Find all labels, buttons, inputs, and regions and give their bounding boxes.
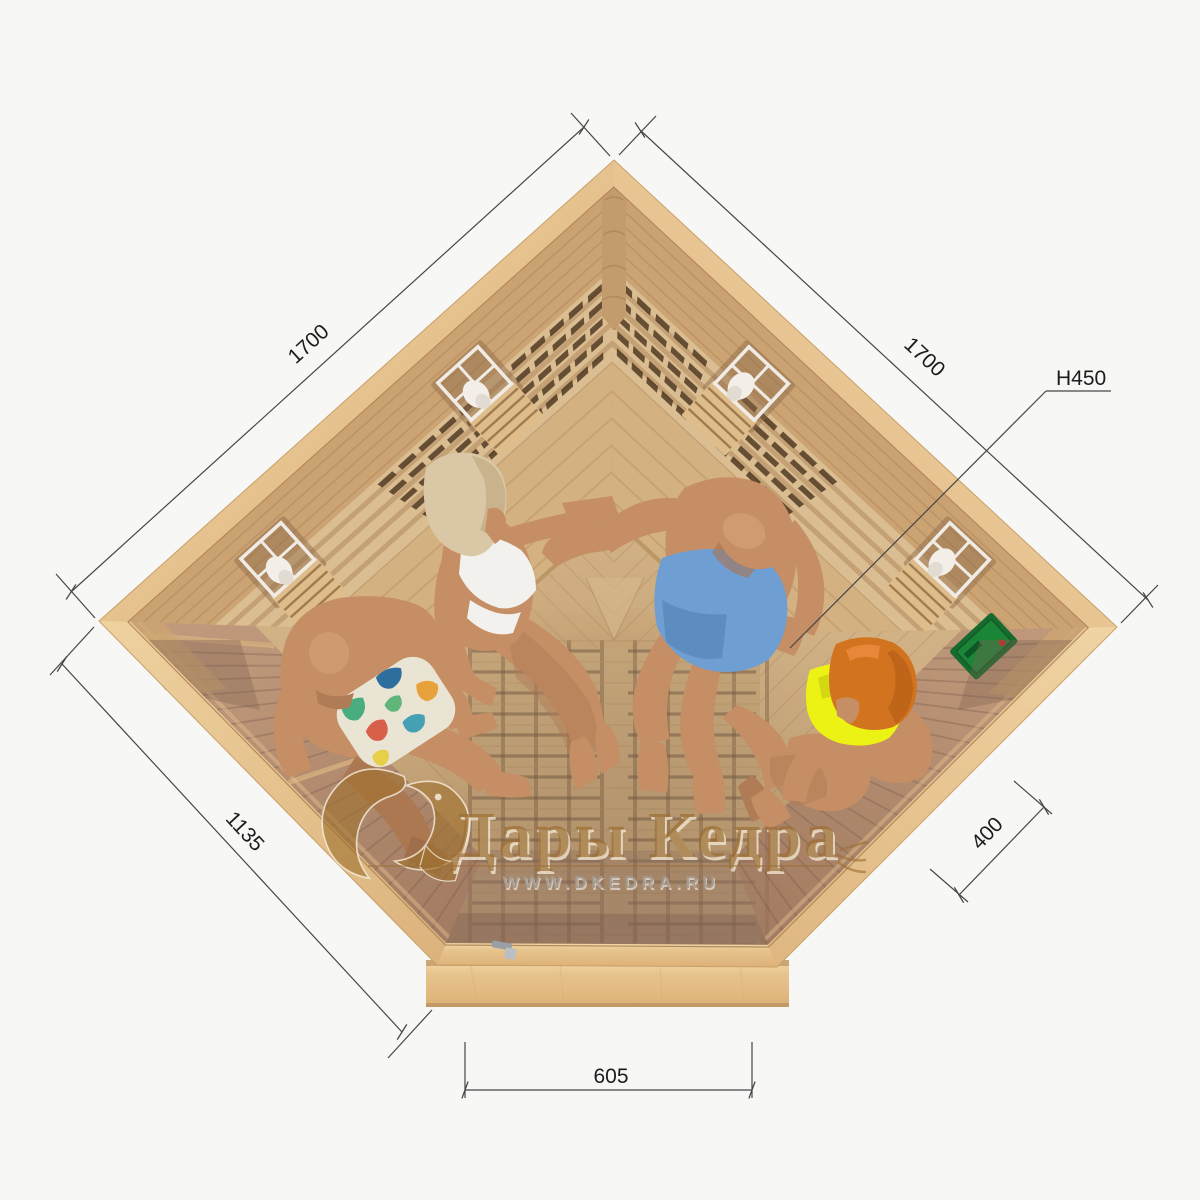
svg-text:H450: H450 (1056, 367, 1106, 390)
svg-text:WWW.DKEDRA.RU: WWW.DKEDRA.RU (503, 872, 720, 892)
svg-text:605: 605 (593, 1065, 628, 1088)
svg-text:Дары Кедра: Дары Кедра (450, 799, 840, 872)
